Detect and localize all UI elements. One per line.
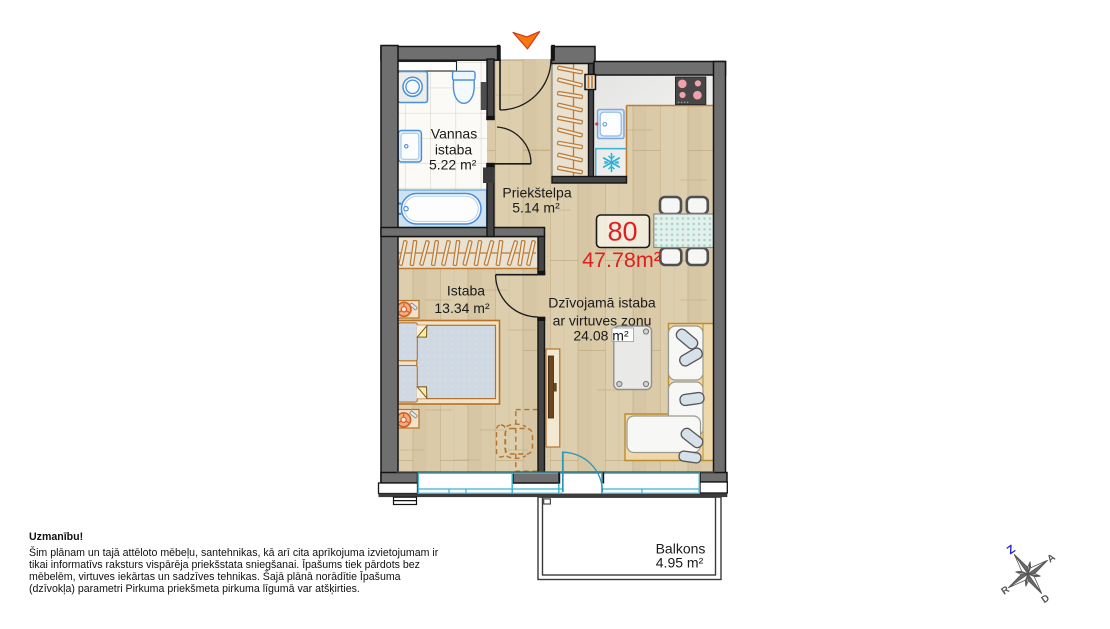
svg-text:Vannas: Vannas [431,126,477,142]
svg-text:Dzīvojamā istaba: Dzīvojamā istaba [548,295,656,311]
svg-text:A: A [1045,552,1057,565]
svg-text:47.78m²: 47.78m² [582,248,661,272]
svg-text:24.08 m²: 24.08 m² [573,328,629,344]
svg-text:istaba: istaba [435,142,473,158]
svg-text:4.95 m²: 4.95 m² [656,555,704,571]
svg-text:Istaba: Istaba [447,283,485,299]
svg-text:Priekštelpa: Priekštelpa [502,185,571,201]
svg-text:ar virtuves zonu: ar virtuves zonu [553,313,652,329]
svg-text:80: 80 [607,217,637,247]
svg-text:5.22 m²: 5.22 m² [429,157,477,173]
svg-text:Z: Z [1005,543,1018,557]
svg-text:13.34 m²: 13.34 m² [434,300,490,316]
svg-text:D: D [1040,593,1052,606]
svg-text:5.14 m²: 5.14 m² [512,200,560,216]
